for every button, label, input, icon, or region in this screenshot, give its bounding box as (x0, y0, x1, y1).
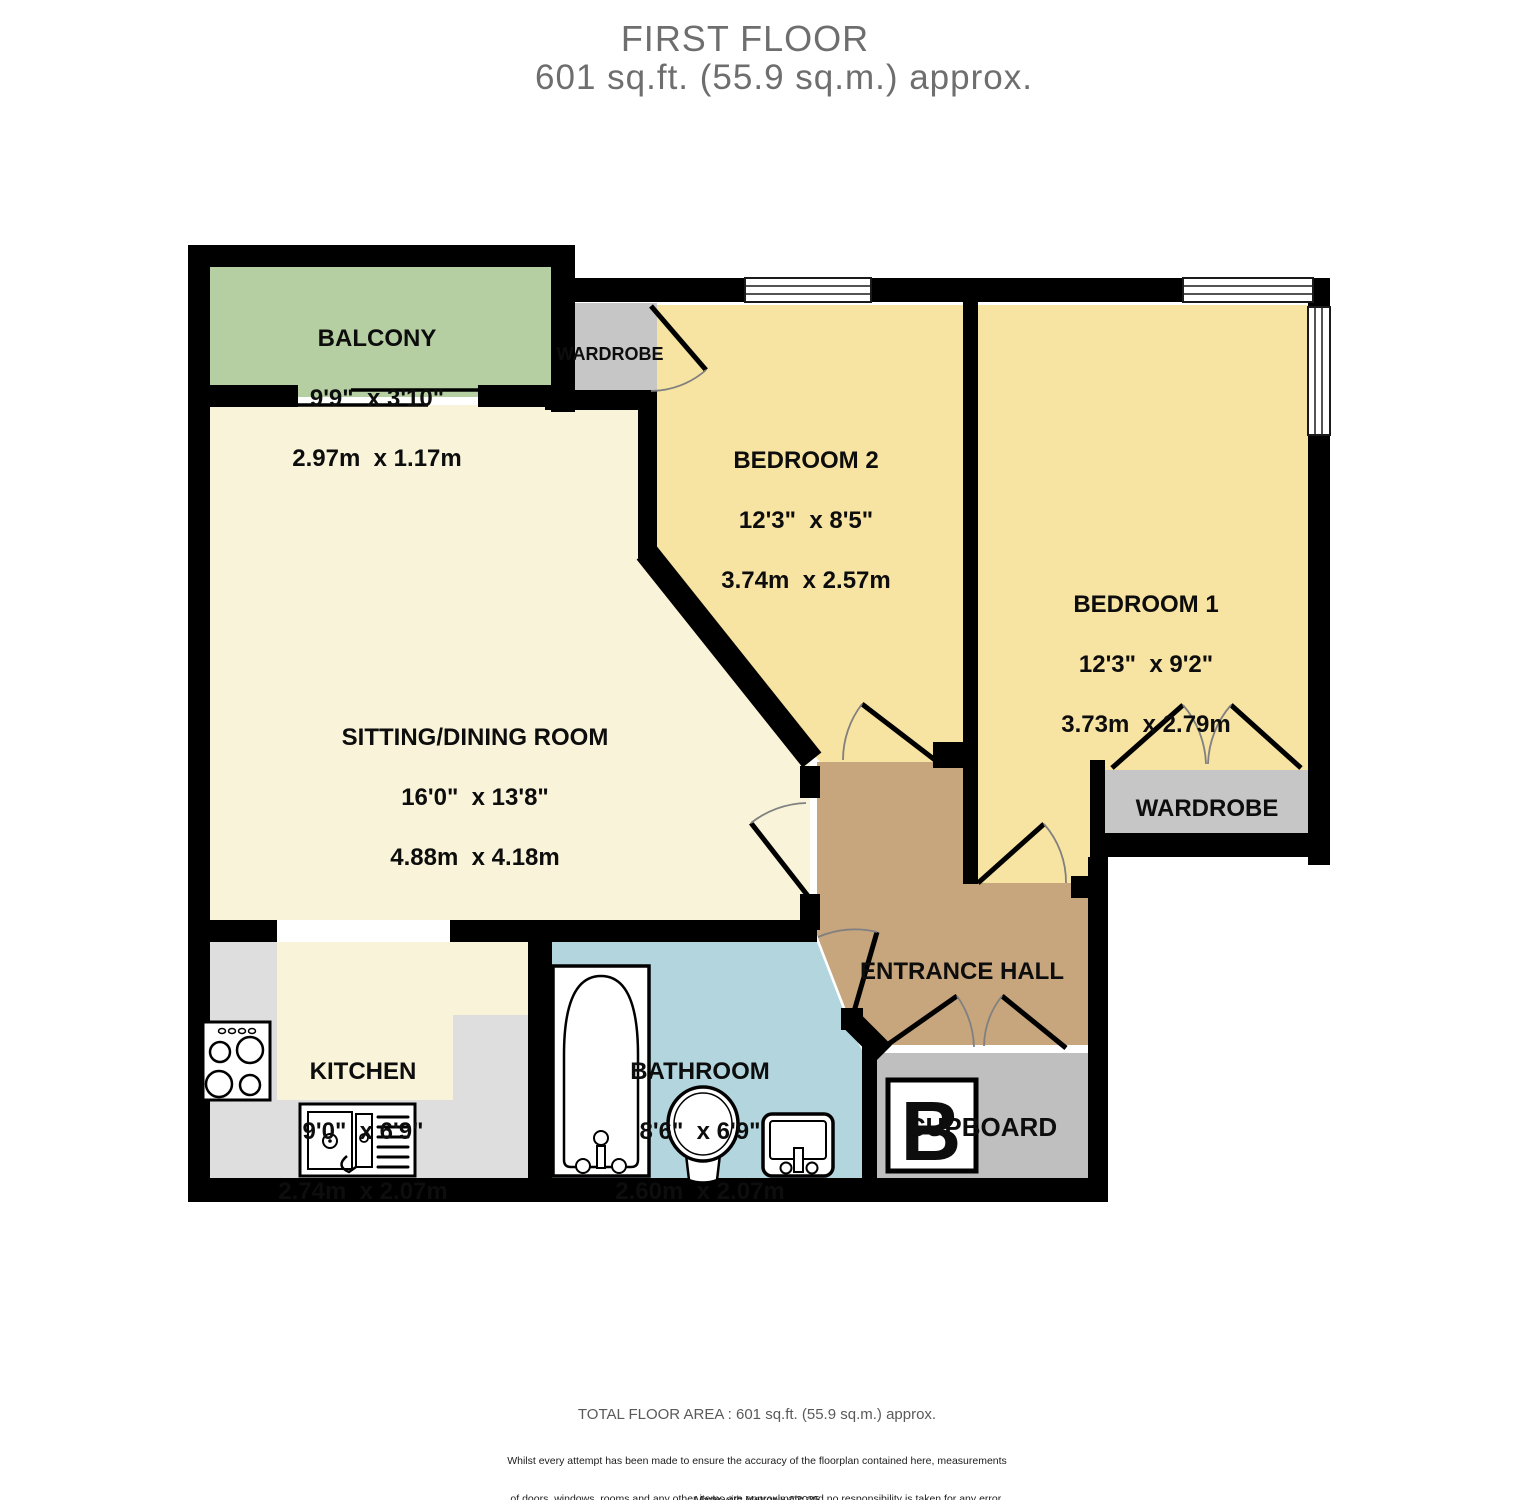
wall-segment (1090, 833, 1330, 857)
stove-icon (203, 1022, 270, 1100)
bedroom2-label: BEDROOM 2 12'3" x 8'5" 3.74m x 2.57m (721, 413, 890, 629)
door-jamb (800, 766, 820, 798)
wall-segment (862, 1040, 877, 1178)
disclaimer: Whilst every attempt has been made to en… (504, 1430, 1009, 1500)
door-jamb (933, 742, 963, 768)
room-dim-imperial: 8'6" x 6'9" (615, 1120, 784, 1144)
room-name: BATHROOM (615, 1060, 784, 1084)
wall-segment (188, 920, 277, 942)
room-name: KITCHEN (278, 1060, 447, 1084)
kitchen-counter-right (453, 1015, 528, 1100)
floorplan-drawing: B (0, 0, 1513, 1500)
bathroom-label: BATHROOM 8'6" x 6'9" 2.60m x 2.07m (615, 1024, 784, 1240)
room-dim-imperial: 9'0" x 6'9" (278, 1120, 447, 1144)
room-name: BALCONY (292, 327, 461, 351)
disclaimer-line: Whilst every attempt has been made to en… (504, 1455, 1009, 1468)
wall-segment (963, 302, 978, 883)
room-name: BEDROOM 1 (1061, 593, 1230, 617)
cupboard-label: CUPBOARD (907, 1112, 1057, 1143)
wall-segment (188, 385, 298, 407)
room-dim-metric: 2.97m x 1.17m (292, 447, 461, 471)
bedroom1-wardrobe-label: WARDROBE (1136, 795, 1279, 823)
floorplan-page: FIRST FLOOR 601 sq.ft. (55.9 sq.m.) appr… (0, 0, 1513, 1500)
credit: Made with Metropix ©2025 (694, 1494, 819, 1500)
wall-segment (1088, 857, 1108, 1202)
entrance-hall-label: ENTRANCE HALL (860, 958, 1064, 986)
door-jamb (800, 894, 820, 930)
wall-segment (638, 406, 657, 558)
room-name: SITTING/DINING ROOM (342, 726, 609, 750)
room-dim-metric: 2.60m x 2.07m (615, 1180, 784, 1204)
wall-segment (450, 920, 817, 942)
room-dim-metric: 4.88m x 4.18m (342, 846, 609, 870)
bedroom2-wardrobe-label: WARDROBE (557, 344, 664, 365)
kitchen-label: KITCHEN 9'0" x 6'9" 2.74m x 2.07m (278, 1024, 447, 1240)
sitting-room-label: SITTING/DINING ROOM 16'0" x 13'8" 4.88m … (342, 690, 609, 906)
room-name: BEDROOM 2 (721, 449, 890, 473)
room-dim-imperial: 12'3" x 8'5" (721, 509, 890, 533)
room-dim-metric: 2.74m x 2.07m (278, 1180, 447, 1204)
bedroom1-label: BEDROOM 1 12'3" x 9'2" 3.73m x 2.79m (1061, 557, 1230, 773)
window-bedroom1-top (1183, 278, 1313, 302)
door-jamb (963, 856, 978, 884)
room-dim-imperial: 16'0" x 13'8" (342, 786, 609, 810)
wall-segment (528, 920, 552, 1178)
door-jamb (1071, 876, 1090, 898)
wall-segment (188, 245, 575, 267)
window-bedroom1-side (1308, 307, 1330, 435)
room-dim-imperial: 12'3" x 9'2" (1061, 653, 1230, 677)
window-bedroom2 (745, 278, 871, 302)
room-dim-imperial: 9'9" x 3'10" (292, 387, 461, 411)
balcony-label: BALCONY 9'9" x 3'10" 2.97m x 1.17m (292, 291, 461, 507)
room-dim-metric: 3.73m x 2.79m (1061, 713, 1230, 737)
total-floor-area: TOTAL FLOOR AREA : 601 sq.ft. (55.9 sq.m… (578, 1406, 936, 1423)
room-dim-metric: 3.74m x 2.57m (721, 569, 890, 593)
